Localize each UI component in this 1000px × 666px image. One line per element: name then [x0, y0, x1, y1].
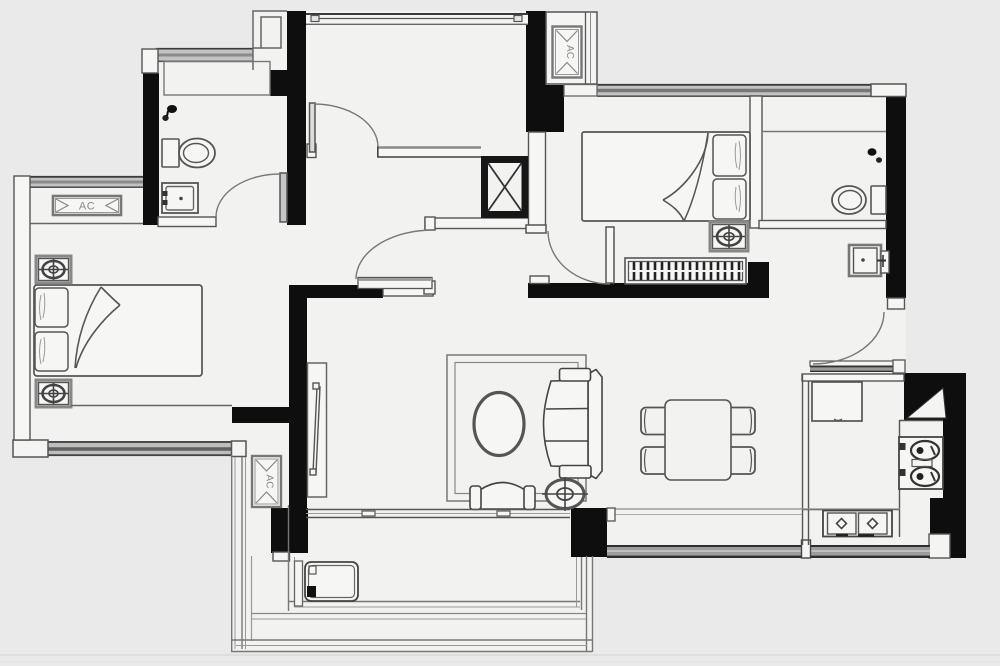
svg-text:AC: AC	[564, 45, 575, 59]
svg-text:AC: AC	[79, 201, 95, 213]
svg-text:AC: AC	[264, 475, 275, 489]
